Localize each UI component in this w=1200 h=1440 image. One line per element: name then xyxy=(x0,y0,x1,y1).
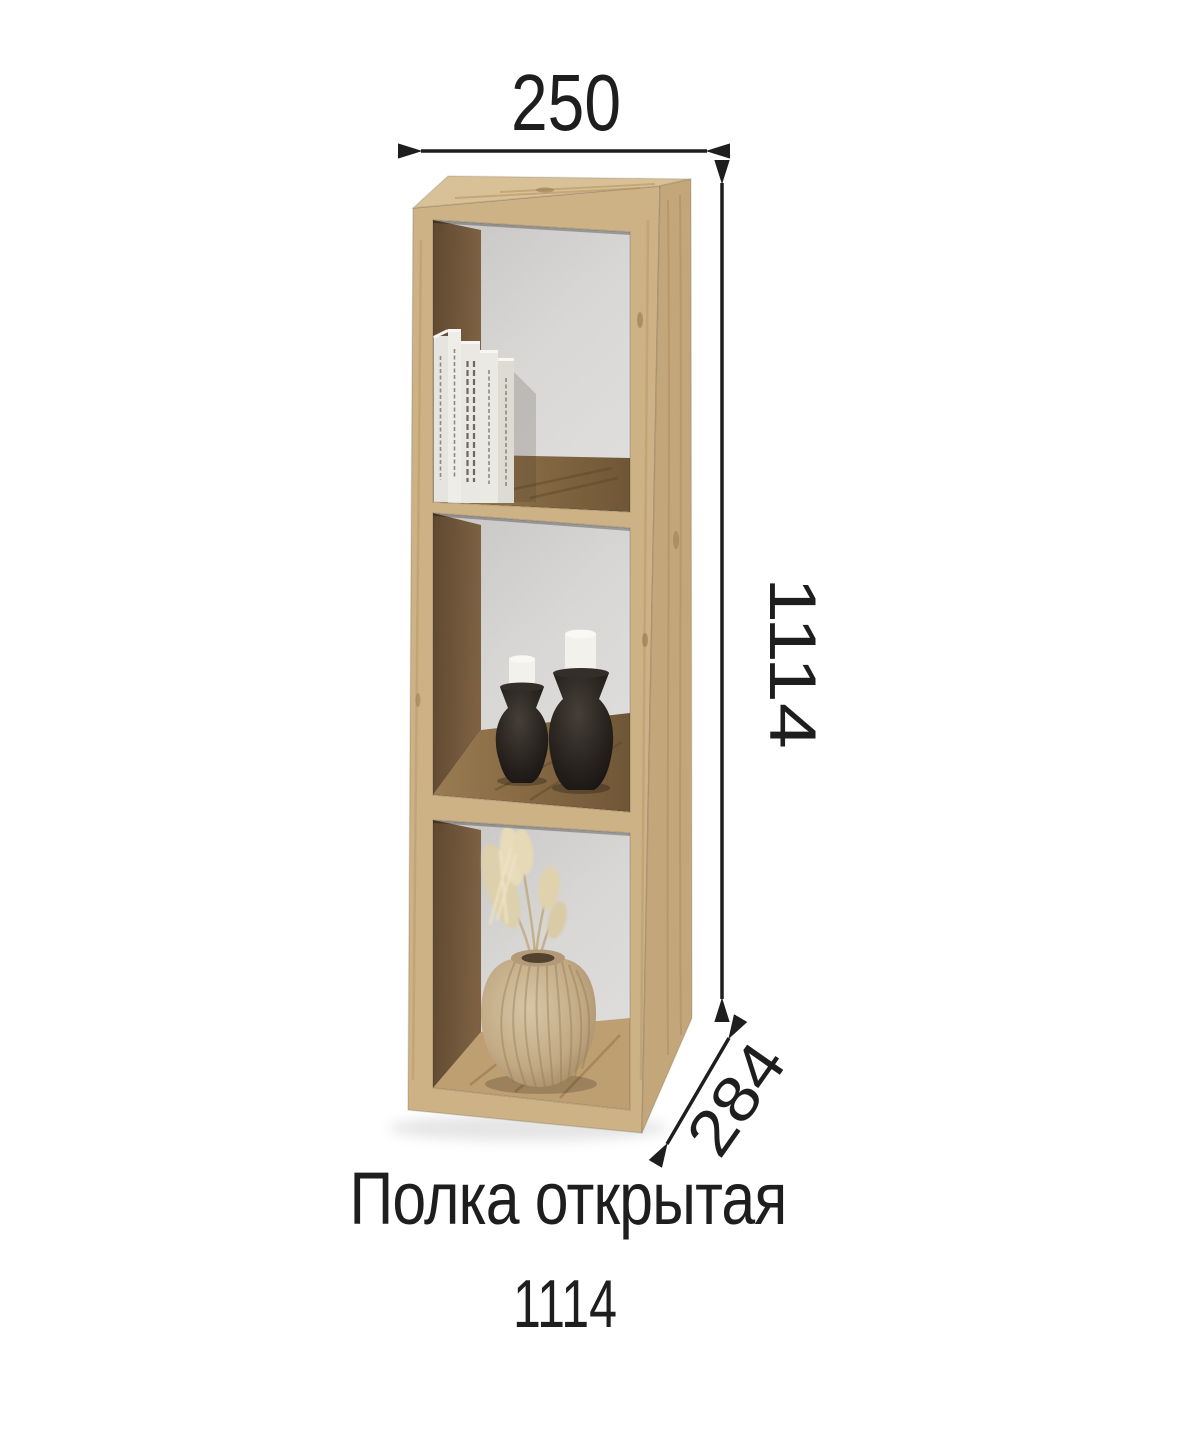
depth-dimension-value: 284 xyxy=(672,1029,800,1169)
product-caption: Полка открытая 1114 xyxy=(350,1157,787,1342)
dimension-width: 250 xyxy=(421,58,707,151)
dimension-height: 1114 xyxy=(722,183,830,999)
shelf-render xyxy=(388,176,692,1141)
dimension-depth: 284 xyxy=(667,1029,800,1169)
books-shadow xyxy=(514,372,536,502)
product-dimension-diagram: 250 1114 284 Полка открытая 1114 xyxy=(0,0,1200,1440)
shelf-diagram-canvas: 250 1114 284 Полка открытая 1114 xyxy=(0,0,1200,1440)
book-spine xyxy=(434,336,449,502)
product-title: Полка открытая xyxy=(350,1157,787,1240)
candle-holder-rim xyxy=(553,668,609,678)
shelf-cell-middle xyxy=(433,513,630,812)
candle-top xyxy=(509,655,535,663)
candle-holder-rim xyxy=(500,683,544,692)
shelf-cell-top xyxy=(433,220,630,512)
candle-top xyxy=(565,630,596,639)
vase-mouth-opening xyxy=(522,953,555,963)
product-code: 1114 xyxy=(513,1266,617,1342)
height-dimension-value: 1114 xyxy=(756,577,830,749)
shelf-cell-bottom xyxy=(433,820,630,1110)
width-dimension-value: 250 xyxy=(511,58,621,147)
book-spine xyxy=(461,341,480,503)
